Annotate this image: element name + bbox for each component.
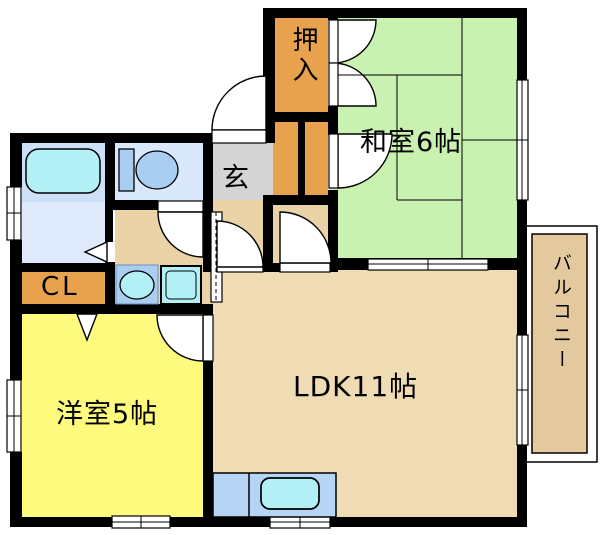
- wall: [298, 122, 305, 197]
- washbasin: [116, 265, 158, 304]
- floorplan-canvas: 和室6帖 LDK11帖 洋室5帖 玄 押入 CL バルコニー: [0, 0, 600, 535]
- wall: [328, 8, 338, 20]
- wall: [10, 304, 213, 314]
- wall: [203, 361, 213, 517]
- balcony-door-window: [517, 335, 528, 445]
- wall: [517, 445, 527, 527]
- ldk-door-leaf: [280, 263, 330, 272]
- yoshitsu-door-gap: [203, 315, 213, 361]
- room-label-closet: CL: [41, 272, 80, 302]
- storage-compartment-left: [273, 122, 298, 197]
- wall: [10, 263, 115, 272]
- room-label-yoshitsu: 洋室5帖: [56, 392, 158, 431]
- sliding-door-washitsu: [368, 259, 488, 270]
- window: [270, 516, 330, 528]
- room-label-oshiire: 押入: [285, 26, 322, 86]
- window: [112, 516, 170, 528]
- wall: [203, 133, 213, 210]
- wall: [263, 195, 273, 272]
- wall: [517, 8, 527, 80]
- entrance-door-swing: [212, 76, 266, 130]
- wall: [10, 517, 113, 527]
- wall: [330, 517, 527, 527]
- oshiire-door-leaf: [329, 20, 338, 63]
- wall: [517, 258, 527, 335]
- entrance-door-leaf: [212, 130, 266, 143]
- wall: [328, 106, 338, 135]
- wall: [105, 140, 115, 202]
- wall: [10, 133, 22, 187]
- closet-door-leaf: [329, 134, 338, 188]
- kitchen-counter: [213, 473, 336, 517]
- kitchen-sink: [261, 478, 319, 509]
- wall: [203, 304, 213, 315]
- wall: [263, 263, 280, 272]
- wall: [110, 200, 158, 210]
- oshiire-door-leaf: [329, 63, 338, 106]
- room-label-ldk: LDK11帖: [293, 365, 418, 405]
- window: [517, 80, 528, 200]
- wall: [10, 452, 22, 527]
- wall: [263, 195, 337, 205]
- room-label-genkan: 玄: [222, 156, 250, 195]
- wall: [263, 8, 527, 18]
- toilet-door-leaf: [158, 201, 203, 212]
- wall: [170, 517, 270, 527]
- toilet: [119, 149, 178, 191]
- bathtub: [26, 149, 100, 193]
- room-label-washitsu: 和室6帖: [360, 120, 462, 159]
- washing-machine-pan: [161, 266, 201, 304]
- window: [7, 187, 21, 240]
- storage-compartment-right: [305, 122, 328, 197]
- room-label-balcony: バルコニー: [548, 253, 575, 373]
- window: [7, 380, 21, 452]
